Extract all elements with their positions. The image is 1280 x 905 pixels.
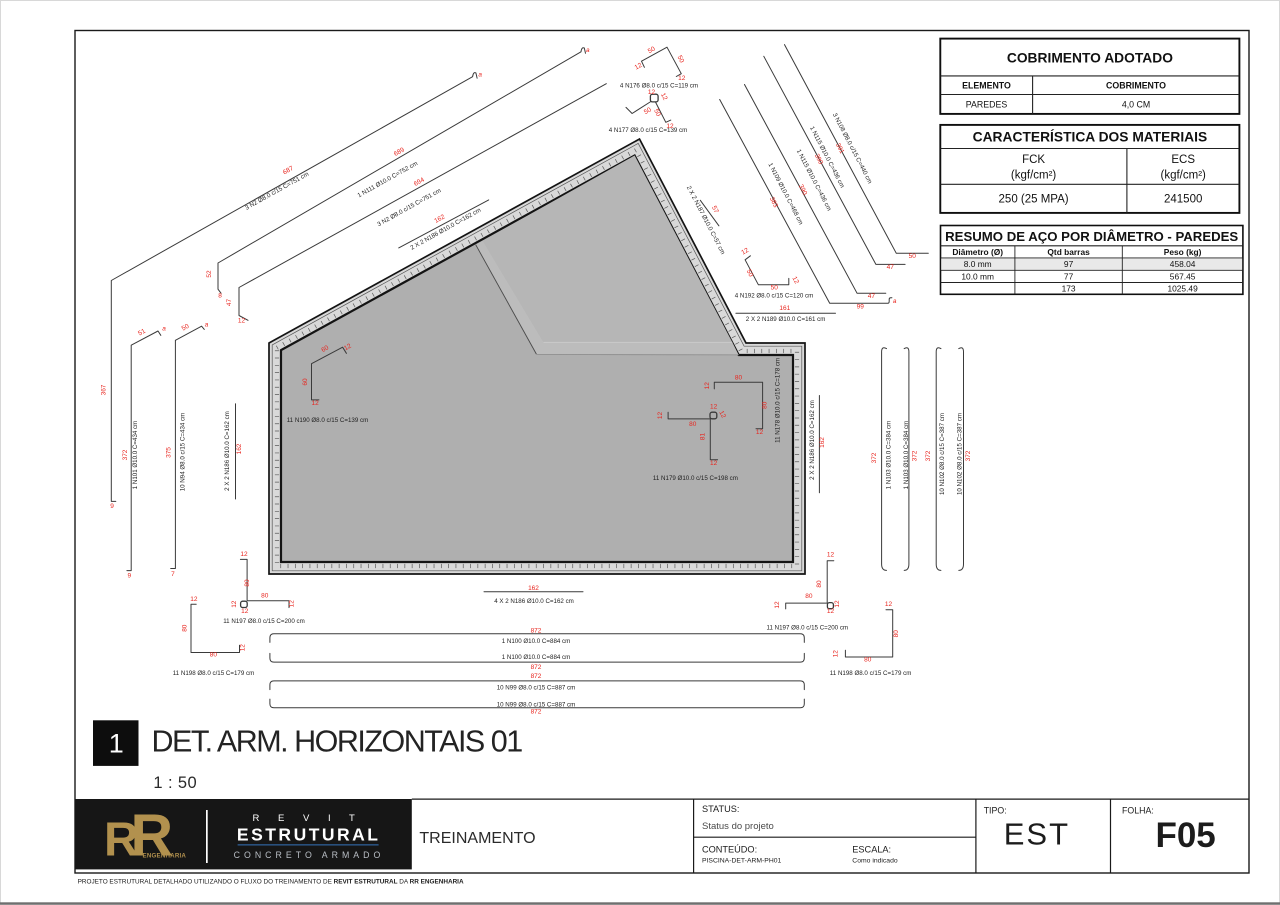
svg-text:ELEMENTO: ELEMENTO [962,80,1011,90]
svg-text:4,0 CM: 4,0 CM [1122,99,1150,109]
svg-text:(kgf/cm²): (kgf/cm²) [1161,170,1207,182]
svg-text:10 N94 Ø8.0 c/15 C=434 cm: 10 N94 Ø8.0 c/15 C=434 cm [180,413,187,492]
svg-text:4 X 2 N186 Ø10.0 C=162 cm: 4 X 2 N186 Ø10.0 C=162 cm [494,598,574,605]
svg-text:Status do projeto: Status do projeto [702,821,774,832]
svg-text:80: 80 [735,375,743,382]
svg-text:12: 12 [238,317,246,324]
svg-text:4 N192 Ø8.0 c/15 C=120 cm: 4 N192 Ø8.0 c/15 C=120 cm [735,293,814,300]
svg-text:12: 12 [756,429,764,436]
svg-text:872: 872 [531,673,542,680]
svg-text:162: 162 [236,443,243,454]
svg-text:50: 50 [771,285,779,292]
svg-text:2 X 2 N186 Ø10.0 C=162 cm: 2 X 2 N186 Ø10.0 C=162 cm [809,400,816,480]
svg-text:TIPO:: TIPO: [984,806,1007,816]
svg-text:11 N198 Ø8.0 c/15 C=179 cm: 11 N198 Ø8.0 c/15 C=179 cm [830,670,912,677]
svg-text:PROJETO ESTRUTURAL DETALHADO U: PROJETO ESTRUTURAL DETALHADO UTILIZANDO … [78,878,464,885]
svg-text:FCK: FCK [1022,154,1045,166]
svg-text:372: 372 [122,449,129,460]
svg-text:12: 12 [289,600,296,608]
svg-text:FOLHA:: FOLHA: [1122,806,1154,816]
svg-text:R E V I T: R E V I T [253,813,363,824]
svg-text:Diâmetro (Ø): Diâmetro (Ø) [952,247,1003,257]
svg-text:872: 872 [531,709,542,716]
svg-text:EST: EST [1004,817,1070,852]
svg-text:52: 52 [206,270,213,278]
svg-text:2 X 2 N186 Ø10.0 C=162 cm: 2 X 2 N186 Ø10.0 C=162 cm [224,411,231,491]
svg-text:12: 12 [678,75,686,82]
svg-text:81: 81 [699,433,706,441]
svg-text:10.0 mm: 10.0 mm [961,271,994,281]
svg-text:PISCINA-DET-ARM-PH01: PISCINA-DET-ARM-PH01 [702,858,782,865]
svg-text:60: 60 [302,378,309,386]
svg-text:80: 80 [762,401,769,409]
svg-text:11 N190 Ø8.0 c/15 C=139 cm: 11 N190 Ø8.0 c/15 C=139 cm [287,417,369,424]
svg-text:12: 12 [666,123,674,130]
svg-text:372: 372 [911,450,918,461]
svg-text:80: 80 [816,580,823,588]
svg-text:CONTEÚDO:: CONTEÚDO: [702,845,757,855]
svg-text:872: 872 [531,627,542,634]
svg-text:241500: 241500 [1164,194,1202,206]
svg-text:ESTRUTURAL: ESTRUTURAL [237,825,381,845]
svg-text:367: 367 [101,384,108,395]
svg-text:a: a [586,47,590,54]
svg-text:80: 80 [893,630,900,638]
svg-text:162: 162 [819,437,826,448]
svg-text:11 N197 Ø8.0 c/15 C=200 cm: 11 N197 Ø8.0 c/15 C=200 cm [767,625,849,632]
svg-text:10 N102 Ø8.0 c/15 C=387 cm: 10 N102 Ø8.0 c/15 C=387 cm [957,413,964,495]
svg-text:COBRIMENTO: COBRIMENTO [1106,80,1166,90]
svg-text:a: a [893,298,897,305]
svg-text:162: 162 [528,585,539,592]
svg-text:372: 372 [965,450,972,461]
svg-text:8: 8 [218,293,222,300]
svg-text:47: 47 [887,264,895,271]
svg-text:10 N102 Ø8.0 c/15 C=387 cm: 10 N102 Ø8.0 c/15 C=387 cm [939,413,946,495]
svg-text:12: 12 [648,89,656,96]
svg-text:4 N177 Ø8.0 c/15 C=139 cm: 4 N177 Ø8.0 c/15 C=139 cm [609,127,688,134]
svg-text:1 N101 Ø10.0 C=434 cm: 1 N101 Ø10.0 C=434 cm [132,421,139,490]
svg-text:1 N100 Ø10.0 C=884 cm: 1 N100 Ø10.0 C=884 cm [502,654,571,661]
svg-text:173: 173 [1062,284,1076,294]
svg-text:1 N100 Ø10.0 C=884 cm: 1 N100 Ø10.0 C=884 cm [502,638,571,645]
svg-text:10 N99 Ø8.0 c/15 C=887 cm: 10 N99 Ø8.0 c/15 C=887 cm [497,701,576,708]
svg-text:Peso (kg): Peso (kg) [1164,247,1202,257]
svg-text:12: 12 [704,382,711,390]
svg-text:97: 97 [1064,259,1074,269]
svg-text:372: 372 [871,452,878,463]
svg-text:4 N176 Ø8.0 c/15 C=119 cm: 4 N176 Ø8.0 c/15 C=119 cm [620,83,698,90]
svg-text:11 N197 Ø8.0 c/15 C=200 cm: 11 N197 Ø8.0 c/15 C=200 cm [223,618,305,625]
svg-text:PAREDES: PAREDES [966,99,1008,109]
svg-text:ENGENHARIA: ENGENHARIA [143,853,187,860]
svg-text:80: 80 [244,579,251,587]
svg-text:a: a [162,325,166,332]
svg-text:ECS: ECS [1171,154,1195,166]
svg-text:F05: F05 [1155,816,1215,855]
svg-text:47: 47 [226,299,233,307]
svg-text:12: 12 [657,412,664,420]
svg-text:250 (25 MPA): 250 (25 MPA) [999,194,1069,206]
svg-text:12: 12 [827,608,835,615]
svg-text:80: 80 [261,592,269,599]
svg-text:1025.49: 1025.49 [1167,284,1198,294]
svg-text:12: 12 [834,600,841,608]
svg-text:12: 12 [231,600,238,608]
svg-text:12: 12 [311,400,319,407]
svg-text:12: 12 [190,596,198,603]
svg-text:80: 80 [864,657,872,664]
svg-text:12: 12 [833,650,840,658]
svg-text:50: 50 [909,253,917,260]
svg-text:12: 12 [240,551,248,558]
svg-text:12: 12 [710,404,718,411]
svg-text:10 N99 Ø8.0 c/15 C=887 cm: 10 N99 Ø8.0 c/15 C=887 cm [497,685,576,692]
svg-text:80: 80 [181,624,188,632]
svg-text:RESUMO DE AÇO POR DIÂMETRO - P: RESUMO DE AÇO POR DIÂMETRO - PAREDES [945,229,1238,244]
svg-text:1 N103 Ø10.0 C=384 cm: 1 N103 Ø10.0 C=384 cm [886,421,893,490]
svg-text:77: 77 [1064,271,1074,281]
svg-text:372: 372 [925,450,932,461]
svg-text:11 N178 Ø10.0 c/15 C=178 cm: 11 N178 Ø10.0 c/15 C=178 cm [775,358,782,443]
svg-text:a: a [478,72,482,79]
svg-text:1 : 50: 1 : 50 [153,774,197,792]
svg-text:11 N198 Ø8.0 c/15 C=179 cm: 11 N198 Ø8.0 c/15 C=179 cm [173,670,255,677]
svg-text:12: 12 [827,552,835,559]
svg-text:9: 9 [110,503,114,510]
svg-text:12: 12 [240,644,247,652]
svg-text:99: 99 [857,304,865,311]
svg-text:375: 375 [166,447,173,458]
svg-text:Como indicado: Como indicado [852,858,898,865]
svg-text:12: 12 [710,460,718,467]
svg-text:567.45: 567.45 [1170,271,1196,281]
svg-text:a: a [205,322,209,329]
svg-text:12: 12 [885,601,893,608]
svg-text:12: 12 [774,601,781,609]
svg-text:872: 872 [531,664,542,671]
svg-text:7: 7 [171,571,175,578]
svg-text:12: 12 [241,608,249,615]
svg-text:1: 1 [109,729,124,759]
svg-text:9: 9 [127,572,131,579]
svg-text:(kgf/cm²): (kgf/cm²) [1011,170,1057,182]
svg-text:1 N103 Ø10.0 C=384 cm: 1 N103 Ø10.0 C=384 cm [903,421,910,490]
svg-text:Qtd barras: Qtd barras [1047,247,1090,257]
svg-text:2 X 2 N189 Ø10.0 C=161 cm: 2 X 2 N189 Ø10.0 C=161 cm [746,316,826,323]
svg-text:80: 80 [805,593,813,600]
svg-text:CARACTERÍSTICA DOS MATERIAIS: CARACTERÍSTICA DOS MATERIAIS [973,129,1208,145]
svg-text:11 N179 Ø10.0 c/15 C=198 cm: 11 N179 Ø10.0 c/15 C=198 cm [653,475,738,482]
svg-text:ESCALA:: ESCALA: [852,845,891,855]
svg-text:CONCRETO ARMADO: CONCRETO ARMADO [234,850,385,860]
svg-text:458.04: 458.04 [1170,259,1196,269]
svg-text:47: 47 [868,293,876,300]
svg-text:STATUS:: STATUS: [702,804,739,814]
svg-text:80: 80 [210,652,218,659]
svg-text:8.0 mm: 8.0 mm [964,259,992,269]
svg-text:COBRIMENTO ADOTADO: COBRIMENTO ADOTADO [1007,51,1173,66]
svg-text:80: 80 [689,421,697,428]
svg-text:161: 161 [779,305,790,312]
svg-text:DET. ARM. HORIZONTAIS 01: DET. ARM. HORIZONTAIS 01 [152,725,523,759]
svg-text:TREINAMENTO: TREINAMENTO [419,830,535,847]
